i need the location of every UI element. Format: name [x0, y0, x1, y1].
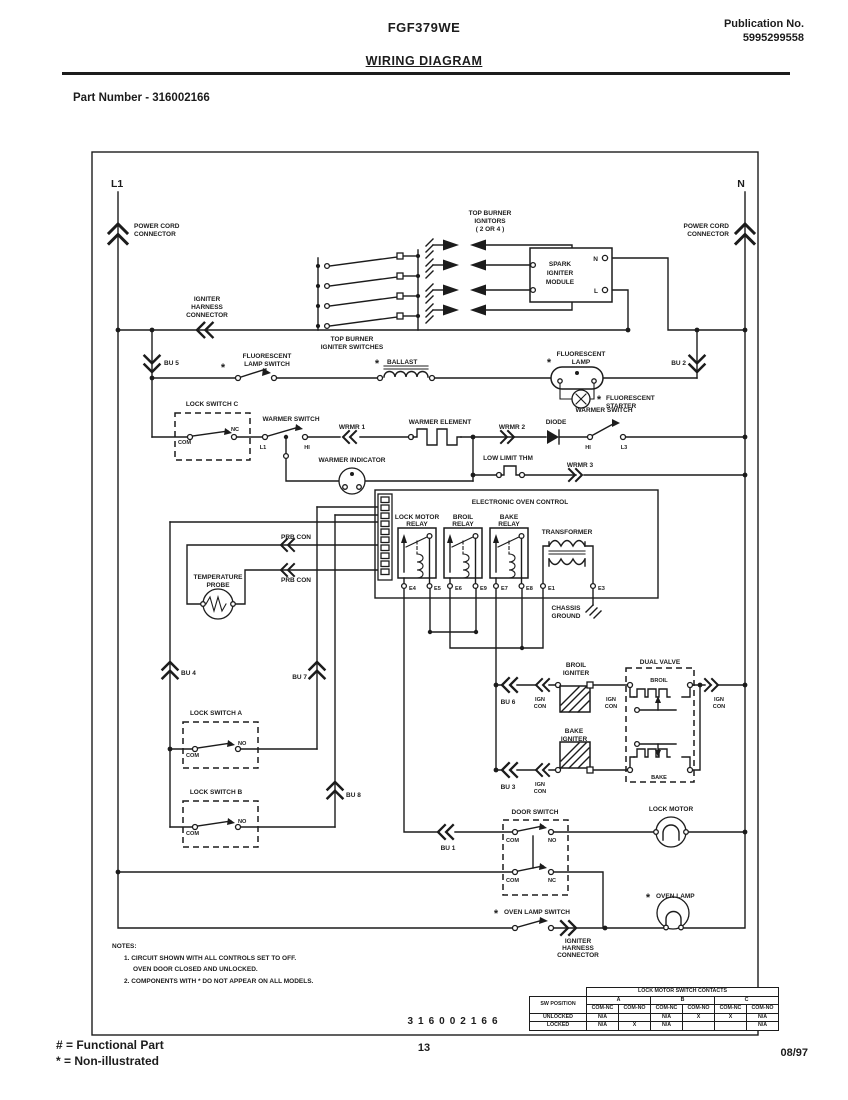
notes-title: NOTES: [112, 943, 137, 950]
label-wrmr3: WRMR 3 [567, 462, 594, 469]
label-e6: E6 [455, 586, 462, 592]
label-bu8: BU 8 [346, 792, 361, 799]
label-low-limit-thm: LOW LIMIT THM [483, 455, 533, 462]
label-bu5: BU 5 [164, 360, 179, 367]
ign-con-broil-right [705, 679, 718, 691]
label-warmer-element: WARMER ELEMENT [409, 419, 472, 426]
label-igniter-harness-bottom-2: HARNESS [562, 945, 594, 952]
label-fluor-lamp-1: FLUORESCENT [557, 351, 606, 358]
label-module-terminal-n: N [593, 256, 598, 263]
wiring-diagram-canvas: L1 N POWER CORD CONNECTOR POWER CORD CON… [0, 0, 848, 1100]
label-ds-com-bottom: COM [506, 878, 519, 884]
label-spark-module-1: SPARK [549, 261, 572, 268]
label-igniter-harness-top-2: HARNESS [191, 304, 223, 311]
row-label-locked: LOCKED [530, 1022, 587, 1031]
label-e1: E1 [548, 586, 555, 592]
star-fluorescent-starter: * [597, 394, 602, 406]
label-top-burner-switches-1: TOP BURNER [331, 336, 374, 343]
label-wrmr2: WRMR 2 [499, 424, 526, 431]
contacts-group-c: C [715, 996, 779, 1005]
label-ds-nc: NC [548, 878, 556, 884]
bake-igniter [556, 742, 594, 773]
publication-date: 08/97 [780, 1047, 808, 1059]
label-top-burner-ignitors-1: TOP BURNER [469, 210, 512, 217]
label-power-cord-n-line1: POWER CORD [684, 223, 730, 230]
star-fluorescent-lamp: * [547, 357, 552, 369]
label-lock-switch-b: LOCK SWITCH B [190, 789, 243, 796]
dual-valve [626, 668, 694, 782]
label-fluor-starter-1: FLUORESCENT [606, 395, 655, 402]
label-ws2-l3: L3 [621, 445, 628, 451]
warmer-indicator [339, 468, 365, 494]
label-chassis-ground-2: GROUND [552, 613, 581, 620]
label-chassis-ground-1: CHASSIS [552, 605, 582, 612]
label-top-burner-switches-2: IGNITER SWITCHES [321, 344, 384, 351]
label-lock-motor-relay-1: LOCK MOTOR [395, 514, 440, 521]
label-bu6: BU 6 [501, 699, 516, 706]
label-temperature-probe-1: TEMPERATURE [194, 574, 244, 581]
label-bu7: BU 7 [292, 674, 307, 681]
fluorescent-lamp-switch [236, 368, 277, 381]
label-fluor-lamp-switch-2: LAMP SWITCH [244, 361, 290, 368]
contacts-header-c-nc: COM-NC [715, 1005, 747, 1014]
diode [547, 430, 559, 444]
label-wrmr1: WRMR 1 [339, 424, 366, 431]
label-lsb-com: COM [186, 831, 199, 837]
fluorescent-starter [572, 390, 590, 408]
label-e3: E3 [598, 586, 605, 592]
temperature-probe [201, 589, 236, 619]
warmer-switch-2 [588, 419, 626, 440]
contacts-table-position-header: SW POSITION [530, 996, 587, 1013]
label-igniter-harness-top-1: IGNITER [194, 296, 221, 303]
label-lsa-no: NO [238, 741, 247, 747]
label-ign-con-bake-2: CON [534, 789, 546, 795]
warmer-switch-1 [263, 424, 308, 458]
label-broil-igniter-1: BROIL [566, 662, 586, 669]
label-warmer-switch-2: WARMER SWITCH [575, 407, 632, 414]
label-igniter-harness-bottom-3: CONNECTOR [557, 952, 599, 959]
cell-locked-c-nc [715, 1022, 747, 1031]
label-ws1-l1: L1 [260, 445, 267, 451]
label-top-burner-ignitors-3: ( 2 OR 4 ) [476, 226, 505, 233]
contacts-header-b-nc: COM-NC [651, 1005, 683, 1014]
label-ign-con-right-1: IGN [714, 697, 724, 703]
low-limit-thermostat [497, 466, 525, 478]
contacts-header-a-no: COM-NO [619, 1005, 651, 1014]
label-l1: L1 [111, 178, 123, 190]
top-burner-igniter-switches [316, 250, 420, 330]
label-broil-relay-2: RELAY [452, 521, 474, 528]
cell-unlocked-c-nc: X [715, 1013, 747, 1022]
label-n: N [737, 178, 745, 190]
label-oven-lamp-switch: OVEN LAMP SWITCH [504, 909, 570, 916]
label-eoc-title: ELECTRONIC OVEN CONTROL [472, 499, 568, 506]
label-lsa-com: COM [186, 753, 199, 759]
bu1-connector [438, 825, 453, 839]
scanned-wiring-diagram-page: FGF379WE Publication No. 5995299558 WIRI… [0, 0, 848, 1100]
label-bake-relay-2: RELAY [498, 521, 520, 528]
cell-locked-b-no [683, 1022, 715, 1031]
label-igniter-harness-bottom-1: IGNITER [565, 938, 592, 945]
label-lock-motor: LOCK MOTOR [649, 806, 694, 813]
label-broil-igniter-2: IGNITER [563, 670, 590, 677]
label-ign-con-bake-1: IGN [535, 782, 545, 788]
warmer-element [409, 429, 462, 445]
label-ws1-hi: HI [304, 445, 310, 451]
label-ballast: BALLAST [387, 359, 417, 366]
legend-non-illustrated: * = Non-illustrated [56, 1054, 159, 1068]
bake-relay [490, 528, 528, 588]
label-lock-switch-a: LOCK SWITCH A [190, 710, 242, 717]
label-valve-broil: BROIL [650, 678, 668, 684]
label-bake-igniter-2: IGNITER [561, 736, 588, 743]
contacts-row-unlocked: UNLOCKED N/A N/A X X N/A [530, 1013, 779, 1022]
lock-switch-a [183, 722, 258, 768]
label-e4: E4 [409, 586, 417, 592]
star-ballast: * [375, 358, 380, 370]
contacts-header-c-no: COM-NO [747, 1005, 779, 1014]
label-e7: E7 [501, 586, 508, 592]
diagram-number: 316002166 [407, 1016, 502, 1027]
label-ds-com-top: COM [506, 838, 519, 844]
label-ign-con-broil-right-2: CON [605, 704, 617, 710]
label-ws2-hi: HI [585, 445, 591, 451]
label-transformer: TRANSFORMER [542, 529, 593, 536]
star-oven-lamp-switch: * [494, 908, 499, 920]
label-bu4: BU 4 [181, 670, 196, 677]
cell-unlocked-a-no [619, 1013, 651, 1022]
ign-con-bake [536, 764, 549, 776]
label-lock-switch-c: LOCK SWITCH C [186, 401, 239, 408]
cell-locked-c-no: N/A [747, 1022, 779, 1031]
contacts-table-title: LOCK MOTOR SWITCH CONTACTS [587, 988, 779, 997]
wrmr1-connector [343, 431, 356, 443]
cell-unlocked-b-nc: N/A [651, 1013, 683, 1022]
transformer [549, 541, 585, 567]
bu6-connector [502, 678, 517, 692]
contacts-header-b-no: COM-NO [683, 1005, 715, 1014]
cell-unlocked-b-no: X [683, 1013, 715, 1022]
page-number: 13 [0, 1042, 848, 1054]
label-prb-con-1: PRB CON [281, 534, 311, 541]
label-bake-relay-1: BAKE [500, 514, 519, 521]
broil-igniter [556, 682, 594, 712]
lock-motor-contacts-table: LOCK MOTOR SWITCH CONTACTS SW POSITION A… [529, 987, 779, 1031]
label-fluor-lamp-switch-1: FLUORESCENT [243, 353, 292, 360]
bu3-connector [502, 763, 517, 777]
cell-unlocked-a-nc: N/A [587, 1013, 619, 1022]
label-e5: E5 [434, 586, 441, 592]
label-lsc-nc: NC [231, 427, 239, 433]
label-fluor-lamp-2: LAMP [572, 359, 591, 366]
cell-unlocked-c-no: N/A [747, 1013, 779, 1022]
label-bu2: BU 2 [671, 360, 686, 367]
label-door-switch: DOOR SWITCH [512, 809, 559, 816]
label-ign-con-broil-left-2: CON [534, 704, 546, 710]
label-lsb-no: NO [238, 819, 247, 825]
label-power-cord-l1-line1: POWER CORD [134, 223, 180, 230]
label-ds-no: NO [548, 838, 557, 844]
label-top-burner-ignitors-2: IGNITORS [474, 218, 506, 225]
label-oven-lamp: OVEN LAMP [656, 893, 695, 900]
label-broil-relay-1: BROIL [453, 514, 473, 521]
label-valve-bake: BAKE [651, 775, 667, 781]
label-ign-con-right-2: CON [713, 704, 725, 710]
ballast [378, 366, 435, 381]
notes-line-2: OVEN DOOR CLOSED AND UNLOCKED. [133, 966, 258, 973]
label-e9: E9 [480, 586, 487, 592]
contacts-group-a: A [587, 996, 651, 1005]
star-oven-lamp: * [646, 892, 651, 904]
oven-lamp [657, 897, 689, 930]
label-warmer-switch-1: WARMER SWITCH [262, 416, 319, 423]
label-ign-con-broil-right-1: IGN [606, 697, 616, 703]
oven-lamp-switch [513, 917, 554, 931]
broil-relay [444, 528, 482, 588]
notes-line-1: 1. CIRCUIT SHOWN WITH ALL CONTROLS SET T… [124, 955, 296, 962]
cell-locked-b-nc: N/A [651, 1022, 683, 1031]
label-power-cord-l1-line2: CONNECTOR [134, 231, 176, 238]
contacts-group-b: B [651, 996, 715, 1005]
label-igniter-harness-top-3: CONNECTOR [186, 312, 228, 319]
notes-line-3: 2. COMPONENTS WITH * DO NOT APPEAR ON AL… [124, 978, 314, 985]
label-bake-igniter-1: BAKE [565, 728, 584, 735]
label-dual-valve: DUAL VALVE [640, 659, 681, 666]
label-diode: DIODE [546, 419, 567, 426]
label-lsc-com: COM [178, 440, 191, 446]
cell-locked-a-no: X [619, 1022, 651, 1031]
label-warmer-indicator: WARMER INDICATOR [319, 457, 386, 464]
label-prb-con-2: PRB CON [281, 577, 311, 584]
lock-switch-b [183, 801, 258, 847]
label-e8: E8 [526, 586, 533, 592]
contacts-row-locked: LOCKED N/A X N/A N/A [530, 1022, 779, 1031]
label-module-terminal-l: L [594, 288, 598, 295]
ign-con-broil-left [536, 679, 549, 691]
lock-motor-relay [398, 528, 436, 588]
star-fluorescent-lamp-switch: * [221, 362, 226, 374]
label-bu3: BU 3 [501, 784, 516, 791]
electronic-oven-control [375, 490, 658, 598]
cell-locked-a-nc: N/A [587, 1022, 619, 1031]
label-spark-module-3: MODULE [546, 279, 575, 286]
label-temperature-probe-2: PROBE [206, 582, 230, 589]
lock-motor [654, 817, 689, 847]
label-spark-module-2: IGNITER [547, 270, 574, 277]
label-lock-motor-relay-2: RELAY [406, 521, 428, 528]
label-bu1: BU 1 [441, 845, 456, 852]
label-ign-con-broil-left-1: IGN [535, 697, 545, 703]
label-power-cord-n-line2: CONNECTOR [687, 231, 729, 238]
row-label-unlocked: UNLOCKED [530, 1013, 587, 1022]
contacts-header-a-nc: COM-NC [587, 1005, 619, 1014]
